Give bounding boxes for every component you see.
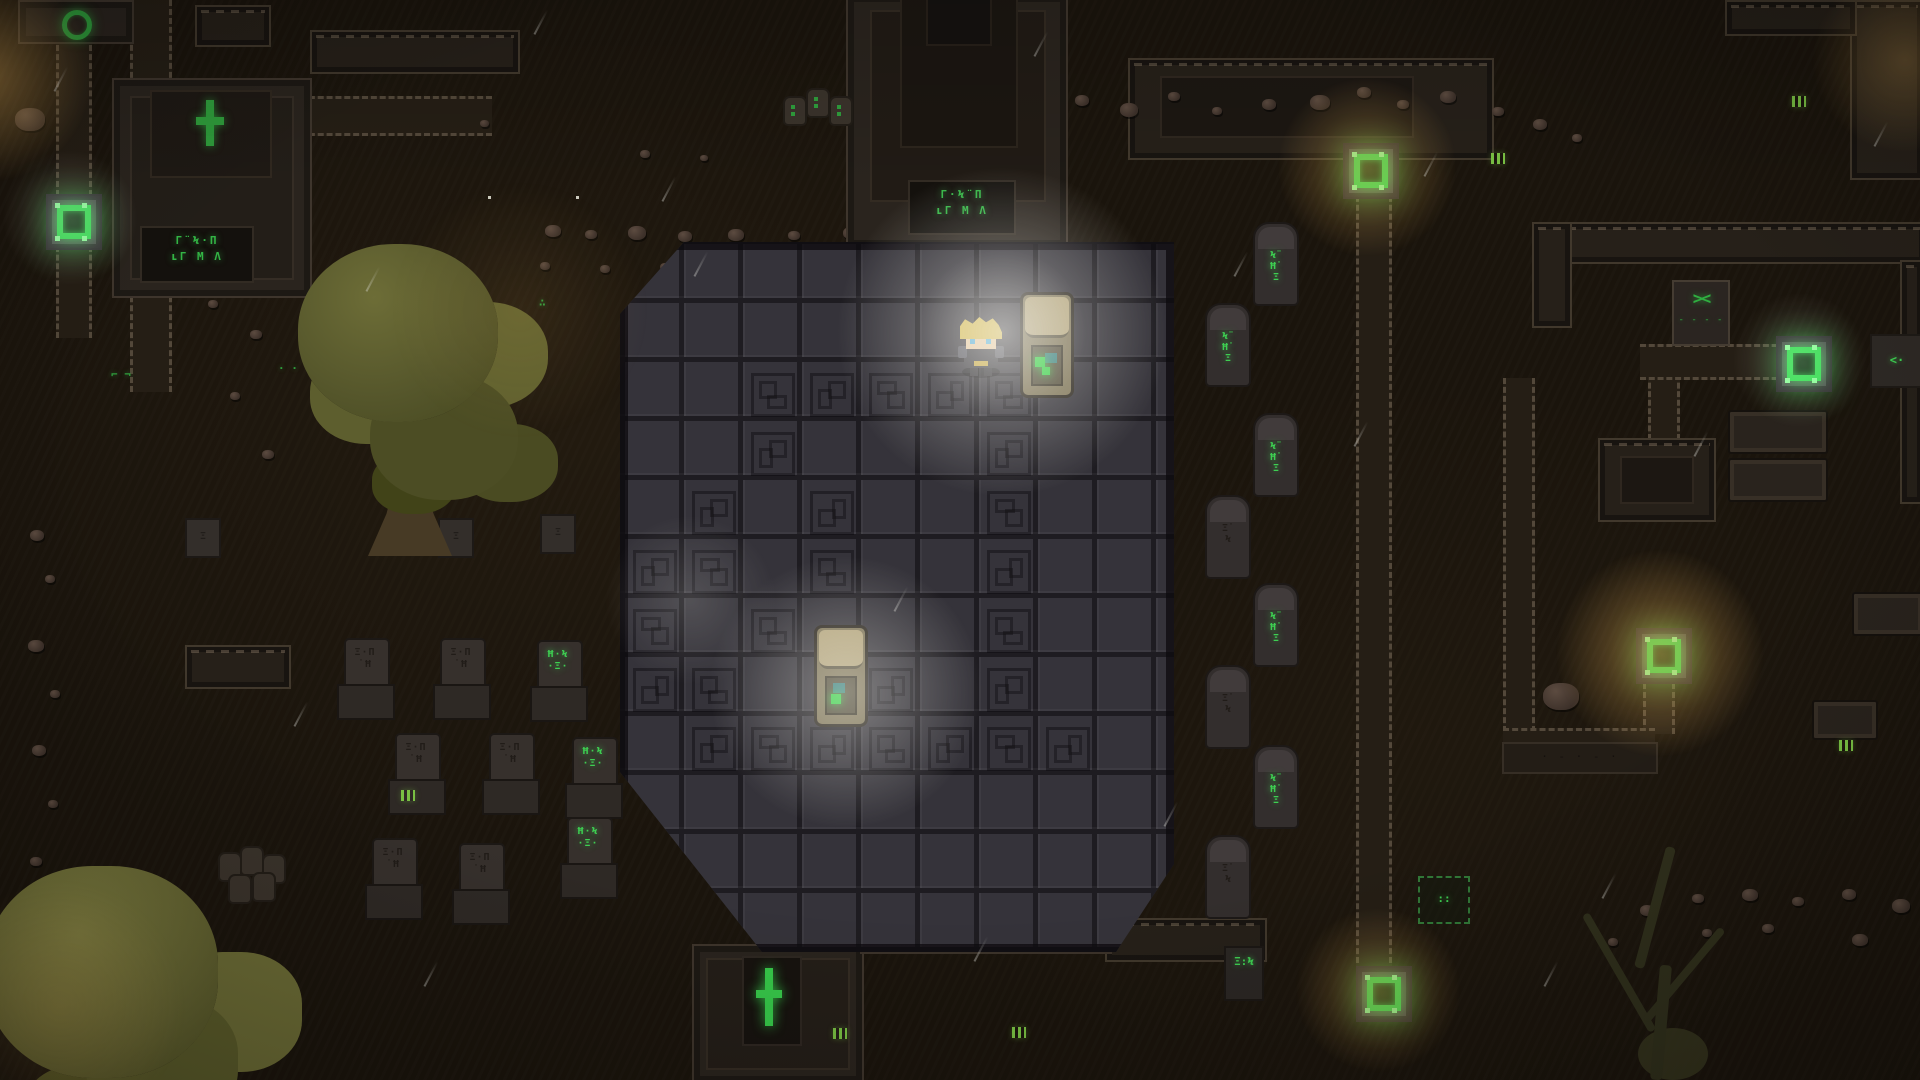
green-gem-icon: [1042, 367, 1050, 375]
sarcophagus-panel: [825, 676, 857, 715]
character-shoulder-pad: [995, 346, 1004, 358]
green-gem-icon: [831, 694, 841, 704]
teal-gem-icon: [833, 683, 845, 693]
character-belt: [974, 361, 988, 366]
sarcophagus-open[interactable]: [1020, 292, 1074, 398]
teal-gem-icon: [1045, 353, 1057, 363]
character-leg: [970, 368, 978, 376]
actors-layer: [0, 0, 1920, 1080]
character-hair: [960, 317, 1002, 339]
player-character[interactable]: [958, 316, 1004, 378]
sarcophagus-open[interactable]: [814, 625, 868, 727]
sarcophagus-lid: [1025, 297, 1069, 338]
green-gem-icon: [1035, 357, 1045, 367]
character-leg: [984, 368, 992, 376]
sarcophagus-lid: [819, 630, 863, 669]
game-screen[interactable]: Γ¨Ϟ·Π ʟΓ Μ Λ Γ·Ϟ¨Π ʟΓ Μ Λ >< - - - - |- …: [0, 0, 1920, 1080]
